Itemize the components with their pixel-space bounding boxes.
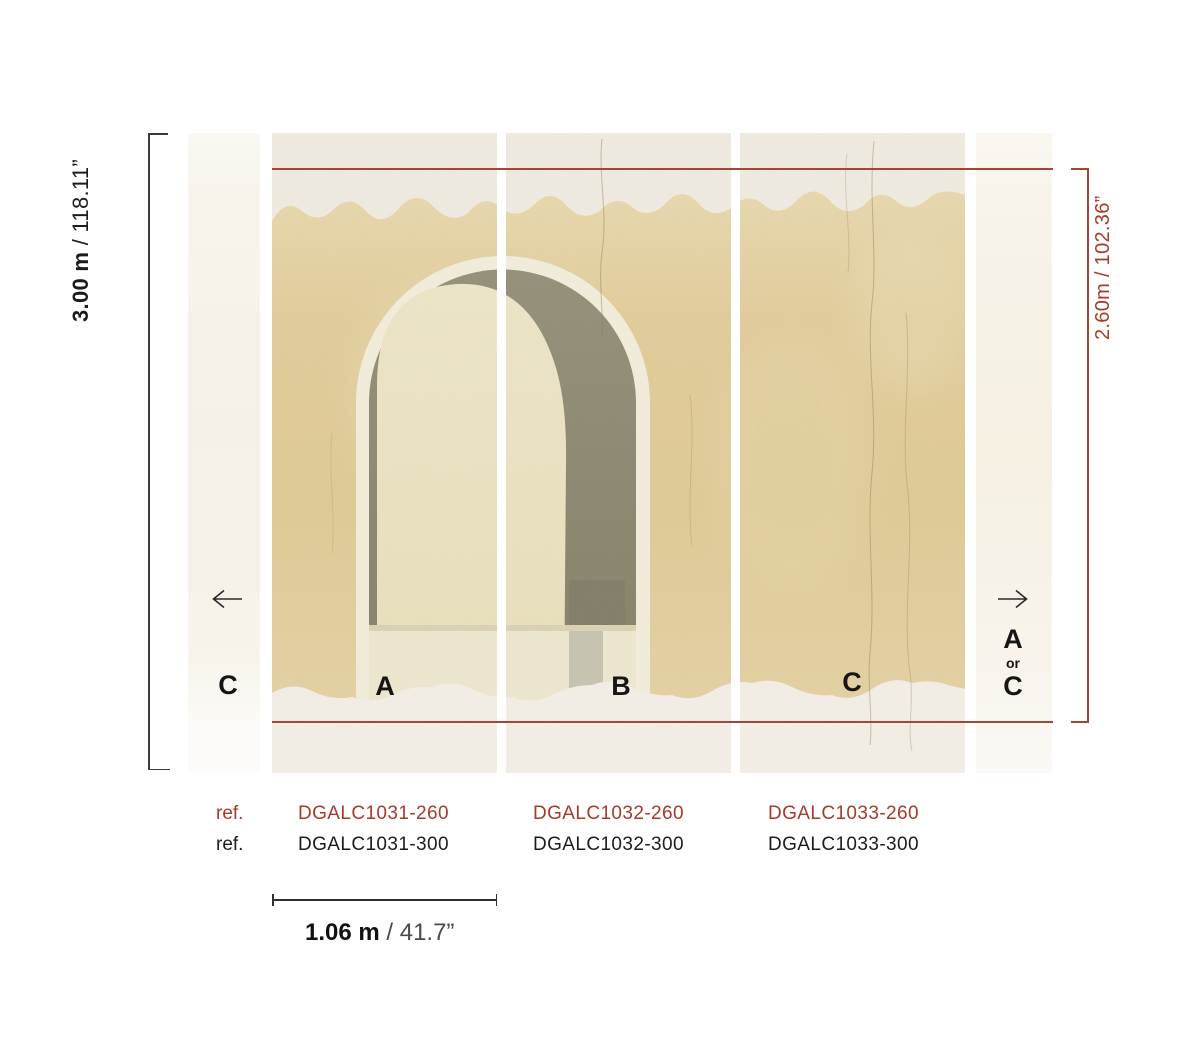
panel-label-right-top: A (993, 624, 1033, 655)
ref-label-260: ref. (216, 803, 243, 825)
top-crop-line (272, 168, 1053, 170)
right-height-value: 2.60m (1092, 283, 1114, 340)
ref-code-c-300: DGALC1033-300 (768, 834, 919, 856)
panel-label-right-or: or (993, 655, 1033, 671)
width-dimension-tick-right (496, 894, 498, 906)
panel-gap-a-b (497, 133, 506, 773)
width-inches: / 41.7” (380, 919, 455, 946)
width-dimension-label: 1.06 m / 41.7” (305, 919, 454, 947)
left-height-inches: / 118.11” (68, 159, 93, 252)
ref-code-a-300: DGALC1031-300 (298, 834, 449, 856)
panel-gap-b-c (731, 133, 740, 773)
bottom-crop-line (272, 721, 1053, 723)
panel-label-left-partial: C (208, 670, 248, 701)
width-dimension-line (272, 899, 497, 901)
right-arrow-icon (996, 586, 1030, 612)
wallpaper-panel-diagram: 3.00 m / 118.11” 2.60m / 102.36” C A B C… (0, 0, 1200, 1064)
ref-label-300: ref. (216, 834, 243, 856)
width-value: 1.06 m (305, 919, 380, 946)
height-bracket-300 (148, 133, 150, 770)
panel-label-c: C (832, 667, 872, 698)
ref-code-b-260: DGALC1032-260 (533, 803, 684, 825)
right-height-inches: / 102.36” (1092, 195, 1114, 283)
ref-code-b-300: DGALC1032-300 (533, 834, 684, 856)
left-height-value: 3.00 m (68, 252, 93, 322)
height-bracket-260-bottom-arm (1071, 721, 1089, 723)
left-arrow-icon (210, 586, 244, 612)
right-height-dimension: 2.60m / 102.36” (1092, 195, 1116, 340)
height-bracket-260 (1087, 168, 1089, 723)
panel-label-a: A (365, 671, 405, 702)
panel-label-b: B (601, 671, 641, 702)
panel-label-right-bottom: C (993, 671, 1033, 702)
height-bracket-300-bottom-arm (148, 769, 170, 771)
left-height-dimension: 3.00 m / 118.11” (68, 159, 94, 322)
ref-code-a-260: DGALC1031-260 (298, 803, 449, 825)
height-bracket-300-top-arm (148, 133, 168, 135)
ref-code-c-260: DGALC1033-260 (768, 803, 919, 825)
